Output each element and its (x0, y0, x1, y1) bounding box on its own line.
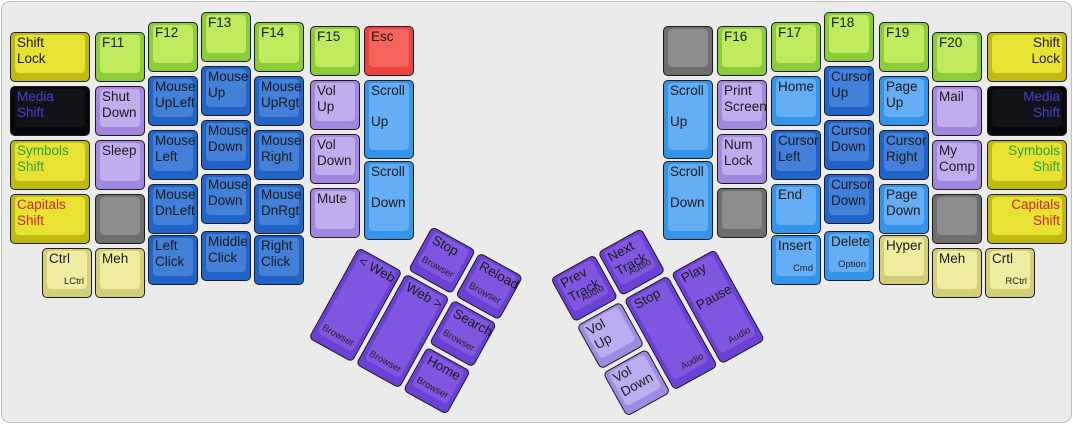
key-label: CursorDown (831, 177, 872, 208)
key-label-line: Cursor (831, 69, 872, 85)
key-blank-right-1[interactable] (663, 26, 713, 76)
key-sublabel: RCtrl (1005, 276, 1027, 287)
key-label-line: Mouse (155, 133, 196, 149)
key-label-line: Delete (831, 234, 870, 250)
key-label-line: Down (831, 193, 872, 209)
key-label: CursorDown (831, 123, 872, 154)
key-sublabel: Option (838, 259, 866, 270)
key-mouse-left[interactable]: MouseLeft (148, 130, 198, 180)
key-label: End (778, 187, 802, 203)
key-page-down[interactable]: PageDown (879, 184, 929, 234)
key-mouse-dnrgt[interactable]: MouseDnRgt (254, 184, 304, 234)
key-label-line: Meh (939, 251, 965, 267)
key-label: MouseDnRgt (261, 187, 302, 218)
key-label: SymbolsShift (1008, 143, 1060, 174)
key-sublabel: LCtrl (64, 276, 84, 287)
key-blank-right-2[interactable] (717, 188, 767, 238)
key-label-line: Vol (317, 83, 336, 99)
keycap-top (100, 197, 140, 235)
key-right-click[interactable]: RightClick (254, 235, 304, 285)
key-label-line: Mouse (261, 133, 302, 149)
key-label-line: Up (670, 114, 704, 130)
key-f17[interactable]: F17 (771, 22, 821, 72)
key-media-shift-right[interactable]: MediaShift (987, 86, 1067, 136)
key-label-line: Shift (1023, 105, 1060, 121)
key-label-line: DnLeft (155, 203, 196, 219)
key-sleep[interactable]: Sleep (95, 140, 145, 190)
key-label-line: Shift (1011, 213, 1060, 229)
key-label-line: F16 (724, 29, 747, 45)
keycap-top (668, 29, 708, 67)
key-label-line: UpRgt (261, 95, 302, 111)
key-label-line: F12 (155, 25, 178, 41)
key-label: Hyper (886, 238, 922, 254)
key-label-line: Shift (17, 105, 54, 121)
key-label-line: Mouse (261, 79, 302, 95)
key-label: MouseDown (208, 123, 249, 154)
key-cursor-left[interactable]: CursorLeft (771, 130, 821, 180)
key-label-line: Comp (939, 159, 975, 175)
key-f20[interactable]: F20 (932, 32, 982, 82)
key-label-line: Print (724, 83, 767, 99)
key-cursor-right[interactable]: CursorRight (879, 130, 929, 180)
key-label-line: F11 (102, 35, 124, 51)
key-label-line (371, 180, 406, 196)
key-label-line: My (939, 143, 975, 159)
key-label-line: Down (886, 203, 921, 219)
key-label: MouseUp (208, 69, 249, 100)
key-label-line: Shift (17, 213, 66, 229)
key-scroll-up-left[interactable]: ScrollUp (364, 80, 414, 159)
key-label-line: Right (261, 149, 302, 165)
key-vol-up-left[interactable]: VolUp (310, 80, 360, 130)
key-label-line: Mail (939, 89, 964, 105)
key-label: MiddleClick (208, 234, 248, 265)
key-left-click[interactable]: LeftClick (148, 235, 198, 285)
key-label-line: F13 (208, 15, 231, 31)
key-label: Ctrl (49, 251, 70, 267)
key-label-line: Page (886, 79, 918, 95)
key-label-line: Down (208, 139, 249, 155)
key-label-line: UpLeft (155, 95, 196, 111)
key-label: CursorLeft (778, 133, 819, 164)
key-label-line: Right (261, 238, 293, 254)
key-label-line: DnRgt (261, 203, 302, 219)
key-label-line: Click (155, 254, 184, 270)
key-insert[interactable]: InsertCmd (771, 235, 821, 285)
key-label-line: Left (778, 149, 819, 165)
key-label-line: F14 (261, 25, 284, 41)
key-label-line: Lock (17, 51, 46, 67)
key-label-line: Shift (1031, 35, 1060, 51)
key-shift-lock-right[interactable]: ShiftLock (987, 32, 1067, 82)
key-middle-click[interactable]: MiddleClick (201, 231, 251, 281)
key-f13[interactable]: F13 (201, 12, 251, 62)
key-f11[interactable]: F11 (95, 32, 145, 82)
key-mouse-right[interactable]: MouseRight (254, 130, 304, 180)
key-page-up[interactable]: PageUp (879, 76, 929, 126)
key-label-line: Esc (371, 29, 394, 45)
key-label-line: Capitals (1011, 197, 1060, 213)
key-mouse-dnleft[interactable]: MouseDnLeft (148, 184, 198, 234)
key-label-line: Hyper (886, 238, 922, 254)
key-blank-right-3[interactable] (932, 194, 982, 244)
key-label: MediaShift (1023, 89, 1060, 120)
key-label: PageUp (886, 79, 918, 110)
key-label: F12 (155, 25, 178, 41)
key-label: Meh (102, 251, 128, 267)
key-mail[interactable]: Mail (932, 86, 982, 136)
key-label-line (670, 180, 705, 196)
key-label: RightClick (261, 238, 293, 269)
key-label-line: Shift (1008, 159, 1060, 175)
key-label-line: Scroll (371, 164, 406, 180)
key-label: MyComp (939, 143, 975, 174)
key-cursor-down-1[interactable]: CursorDown (824, 120, 874, 170)
keyboard-layout-stage: ShiftLockMediaShiftSymbolsShiftCapitalsS… (0, 0, 1073, 424)
key-label-line: Shut (102, 89, 137, 105)
key-num-lock[interactable]: NumLock (717, 134, 767, 184)
key-label-line: F19 (886, 25, 909, 41)
key-delete[interactable]: DeleteOption (824, 231, 874, 281)
key-label: F15 (317, 29, 340, 45)
key-label: Delete (831, 234, 870, 250)
key-label: Esc (371, 29, 394, 45)
key-label-line: Mouse (208, 69, 249, 85)
key-label-line: Lock (724, 153, 753, 169)
key-label-line: Mouse (208, 123, 249, 139)
key-label: MouseDown (208, 177, 249, 208)
key-label-line: Media (17, 89, 54, 105)
key-mouse-down-1[interactable]: MouseDown (201, 120, 251, 170)
key-ctrl-left[interactable]: CtrlLCtrl (42, 248, 92, 298)
key-hyper[interactable]: Hyper (879, 235, 929, 285)
key-mouse-up[interactable]: MouseUp (201, 66, 251, 116)
key-label: MouseLeft (155, 133, 196, 164)
keycap-top (937, 197, 977, 235)
key-scroll-up-right[interactable]: ScrollUp (663, 80, 713, 159)
key-label: Mail (939, 89, 964, 105)
key-label-line: Capitals (17, 197, 66, 213)
key-f18[interactable]: F18 (824, 12, 874, 62)
key-label-line: Lock (1031, 51, 1060, 67)
key-label-line: Mouse (155, 79, 196, 95)
key-label-line: Media (1023, 89, 1060, 105)
key-label: F13 (208, 15, 231, 31)
key-label-line: Middle (208, 234, 248, 250)
key-mouse-down-2[interactable]: MouseDown (201, 174, 251, 224)
key-label: F17 (778, 25, 801, 41)
key-label: Insert (778, 238, 812, 254)
key-label-line: Ctrl (49, 251, 70, 267)
key-label-line: Shift (17, 159, 69, 175)
key-label-line: Symbols (1008, 143, 1060, 159)
key-media-shift-left[interactable]: MediaShift (10, 86, 90, 136)
key-crtl-right[interactable]: CrtlRCtrl (985, 248, 1035, 298)
key-mouse-uprgt[interactable]: MouseUpRgt (254, 76, 304, 126)
key-label-line: Mouse (208, 177, 249, 193)
key-label: CursorRight (886, 133, 927, 164)
key-blank-left-1[interactable] (95, 194, 145, 244)
key-label-line: Click (208, 250, 248, 266)
key-label-line: Vol (317, 137, 352, 153)
key-f15[interactable]: F15 (310, 26, 360, 76)
key-capitals-shift-left[interactable]: CapitalsShift (10, 194, 90, 244)
key-label-line: Mouse (261, 187, 302, 203)
key-esc[interactable]: Esc (364, 26, 414, 76)
key-label: F19 (886, 25, 909, 41)
key-f16[interactable]: F16 (717, 26, 767, 76)
key-vol-down-left[interactable]: VolDown (310, 134, 360, 184)
key-label-line: Up (886, 95, 918, 111)
key-symbols-shift-right[interactable]: SymbolsShift (987, 140, 1067, 190)
key-label: NumLock (724, 137, 753, 168)
key-label-line: Click (261, 254, 293, 270)
key-label-line: F18 (831, 15, 854, 31)
key-label: VolUp (317, 83, 336, 114)
key-label-line: Crtl (992, 251, 1013, 267)
key-meh-right[interactable]: Meh (932, 248, 982, 298)
key-label: F18 (831, 15, 854, 31)
key-label-line: F20 (939, 35, 962, 51)
key-label-line: Down (317, 153, 352, 169)
key-end[interactable]: End (771, 184, 821, 234)
key-label-line: Mouse (155, 187, 196, 203)
keyboard-case: ShiftLockMediaShiftSymbolsShiftCapitalsS… (1, 1, 1072, 423)
key-label: MouseUpLeft (155, 79, 196, 110)
key-label: PrintScreen (724, 83, 767, 114)
key-symbols-shift-left[interactable]: SymbolsShift (10, 140, 90, 190)
keycap-top (722, 191, 762, 229)
key-label: F16 (724, 29, 747, 45)
key-label-line: Num (724, 137, 753, 153)
key-label: MouseRight (261, 133, 302, 164)
key-label-line: Up (371, 114, 405, 130)
key-label: PageDown (886, 187, 921, 218)
key-label: LeftClick (155, 238, 184, 269)
key-label-line: Home (778, 79, 814, 95)
key-label-line: Up (317, 99, 336, 115)
key-label-line: Left (155, 149, 196, 165)
key-label: CapitalsShift (17, 197, 66, 228)
key-label-line: Scroll (670, 164, 705, 180)
key-f19[interactable]: F19 (879, 22, 929, 72)
key-shut-down[interactable]: ShutDown (95, 86, 145, 136)
key-nav-home[interactable]: Home (771, 76, 821, 126)
key-label: Home (778, 79, 814, 95)
key-label: MouseUpRgt (261, 79, 302, 110)
key-print-screen[interactable]: PrintScreen (717, 80, 767, 130)
key-label-line: Scroll (670, 83, 704, 99)
key-f12[interactable]: F12 (148, 22, 198, 72)
key-mute[interactable]: Mute (310, 188, 360, 238)
key-label-line: Mute (317, 191, 347, 207)
key-label-line: Meh (102, 251, 128, 267)
key-label-line: Down (831, 139, 872, 155)
key-label: F20 (939, 35, 962, 51)
key-label: CursorUp (831, 69, 872, 100)
key-label-line: Cursor (886, 133, 927, 149)
key-mouse-upleft[interactable]: MouseUpLeft (148, 76, 198, 126)
key-label-line (371, 99, 405, 115)
key-label-line: Symbols (17, 143, 69, 159)
key-label: ScrollUp (371, 83, 405, 130)
key-label-line: Down (102, 105, 137, 121)
key-label: F11 (102, 35, 124, 51)
key-label-line: Cursor (778, 133, 819, 149)
key-my-comp[interactable]: MyComp (932, 140, 982, 190)
key-label-line: Scroll (371, 83, 405, 99)
key-label-line (670, 99, 704, 115)
key-label: SymbolsShift (17, 143, 69, 174)
key-label: CapitalsShift (1011, 197, 1060, 228)
key-label: Crtl (992, 251, 1013, 267)
key-label-line: Sleep (102, 143, 137, 159)
key-meh-left[interactable]: Meh (95, 248, 145, 298)
key-label-line: Cursor (831, 177, 872, 193)
key-label-line: Up (831, 85, 872, 101)
key-label-line: Up (208, 85, 249, 101)
key-label: VolDown (317, 137, 352, 168)
key-shift-lock-left[interactable]: ShiftLock (10, 32, 90, 82)
key-cursor-up[interactable]: CursorUp (824, 66, 874, 116)
key-label: Meh (939, 251, 965, 267)
key-label: F14 (261, 25, 284, 41)
key-label: MouseDnLeft (155, 187, 196, 218)
key-label-line: End (778, 187, 802, 203)
key-label-line: Screen (724, 99, 767, 115)
key-label: ShutDown (102, 89, 137, 120)
key-capitals-shift-right[interactable]: CapitalsShift (987, 194, 1067, 244)
key-label: ShiftLock (17, 35, 46, 66)
key-label: Sleep (102, 143, 137, 159)
key-label-line: Down (208, 193, 249, 209)
key-label-line: Shift (17, 35, 46, 51)
key-label: Mute (317, 191, 347, 207)
key-label-line: F15 (317, 29, 340, 45)
key-label-line: Cursor (831, 123, 872, 139)
key-label-line: F17 (778, 25, 801, 41)
key-label: ScrollUp (670, 83, 704, 130)
key-f14[interactable]: F14 (254, 22, 304, 72)
key-label-line: Page (886, 187, 921, 203)
key-label-line: Insert (778, 238, 812, 254)
key-label-line: Right (886, 149, 927, 165)
key-cursor-down-2[interactable]: CursorDown (824, 174, 874, 224)
key-label: MediaShift (17, 89, 54, 120)
key-label-line: Left (155, 238, 184, 254)
key-sublabel: Cmd (793, 263, 813, 274)
key-label: ShiftLock (1031, 35, 1060, 66)
